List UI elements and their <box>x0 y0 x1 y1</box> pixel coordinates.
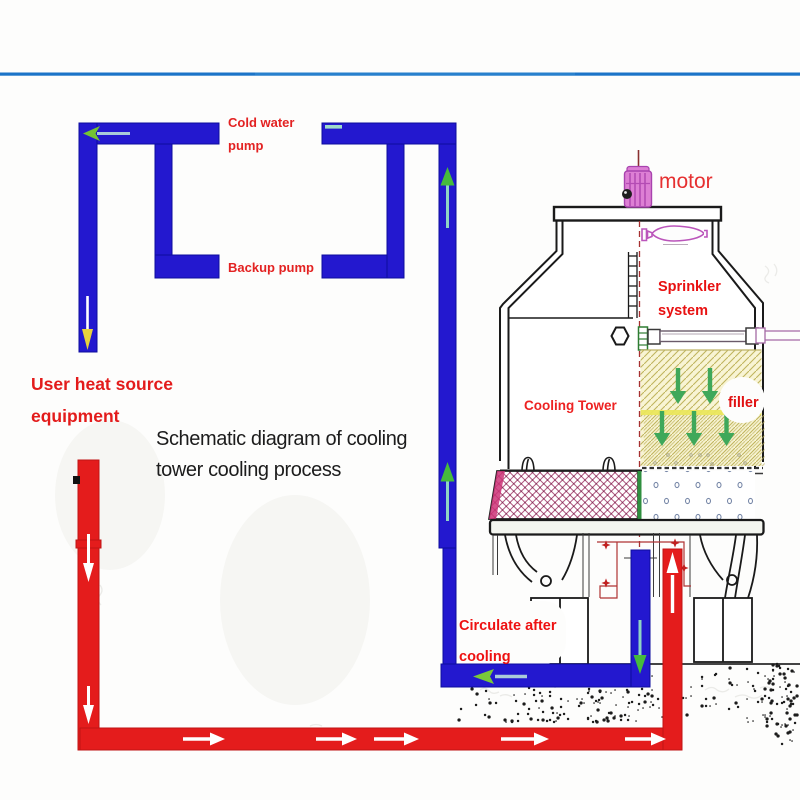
svg-text:Cooling Tower: Cooling Tower <box>524 398 617 413</box>
svg-text:tower cooling process: tower cooling process <box>156 459 341 481</box>
svg-text:Circulate after: Circulate after <box>459 618 557 634</box>
svg-text:pump: pump <box>228 138 263 153</box>
svg-text:motor: motor <box>659 170 713 193</box>
svg-text:Backup pump: Backup pump <box>228 260 314 275</box>
svg-text:Schematic diagram of cooling: Schematic diagram of cooling <box>156 428 407 450</box>
svg-text:cooling: cooling <box>459 649 511 665</box>
svg-text:system: system <box>658 303 708 319</box>
svg-text:Cold water: Cold water <box>228 115 294 130</box>
svg-text:filler: filler <box>728 395 759 411</box>
svg-text:Sprinkler: Sprinkler <box>658 279 721 295</box>
svg-text:equipment: equipment <box>31 406 120 426</box>
svg-text:User heat source: User heat source <box>31 374 173 394</box>
